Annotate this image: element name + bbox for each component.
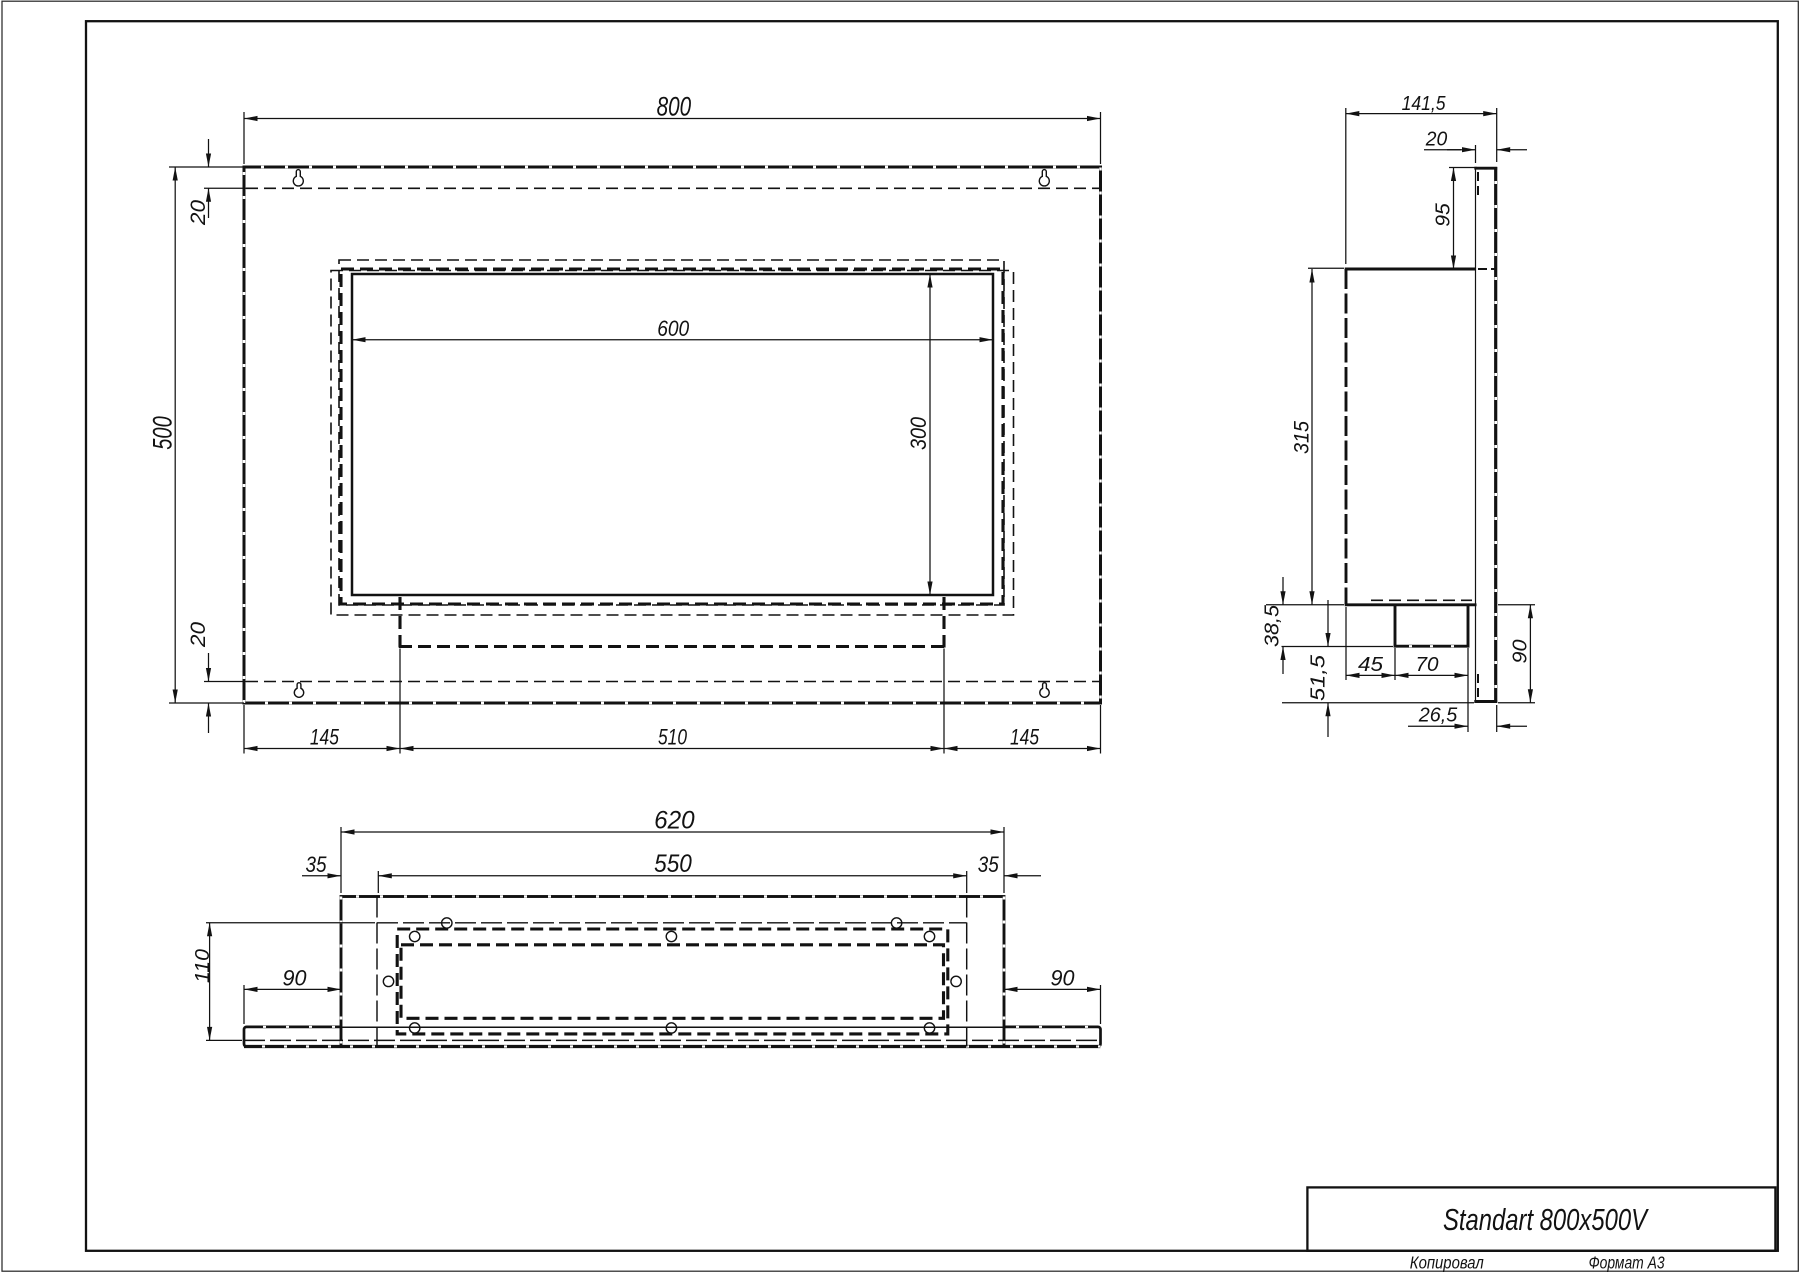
svg-text:Формат А3: Формат А3 — [1589, 1253, 1665, 1273]
svg-text:600: 600 — [657, 316, 690, 341]
svg-text:45: 45 — [1358, 654, 1384, 676]
svg-text:Standart 800x500V: Standart 800x500V — [1443, 1202, 1650, 1237]
svg-text:500: 500 — [148, 416, 178, 450]
svg-text:800: 800 — [657, 92, 692, 122]
svg-text:145: 145 — [1010, 725, 1040, 750]
svg-text:90: 90 — [1510, 640, 1532, 664]
svg-text:95: 95 — [1433, 202, 1455, 227]
svg-text:35: 35 — [306, 852, 328, 877]
svg-text:38,5: 38,5 — [1262, 604, 1284, 647]
svg-text:20: 20 — [1425, 129, 1447, 151]
svg-text:141,5: 141,5 — [1402, 93, 1447, 115]
svg-text:110: 110 — [192, 949, 214, 983]
svg-text:510: 510 — [658, 725, 688, 750]
svg-text:315: 315 — [1291, 421, 1314, 454]
svg-text:620: 620 — [654, 806, 695, 834]
svg-text:90: 90 — [1051, 966, 1076, 991]
svg-text:20: 20 — [187, 622, 210, 648]
svg-text:70: 70 — [1416, 654, 1439, 676]
svg-text:26,5: 26,5 — [1418, 704, 1458, 726]
svg-text:300: 300 — [906, 416, 931, 450]
svg-text:90: 90 — [283, 966, 308, 991]
svg-text:20: 20 — [187, 200, 210, 226]
svg-text:Копировал: Копировал — [1410, 1253, 1484, 1273]
svg-text:145: 145 — [310, 725, 340, 750]
svg-text:51,5: 51,5 — [1308, 654, 1330, 701]
svg-text:550: 550 — [654, 850, 692, 878]
svg-text:35: 35 — [978, 852, 1000, 877]
